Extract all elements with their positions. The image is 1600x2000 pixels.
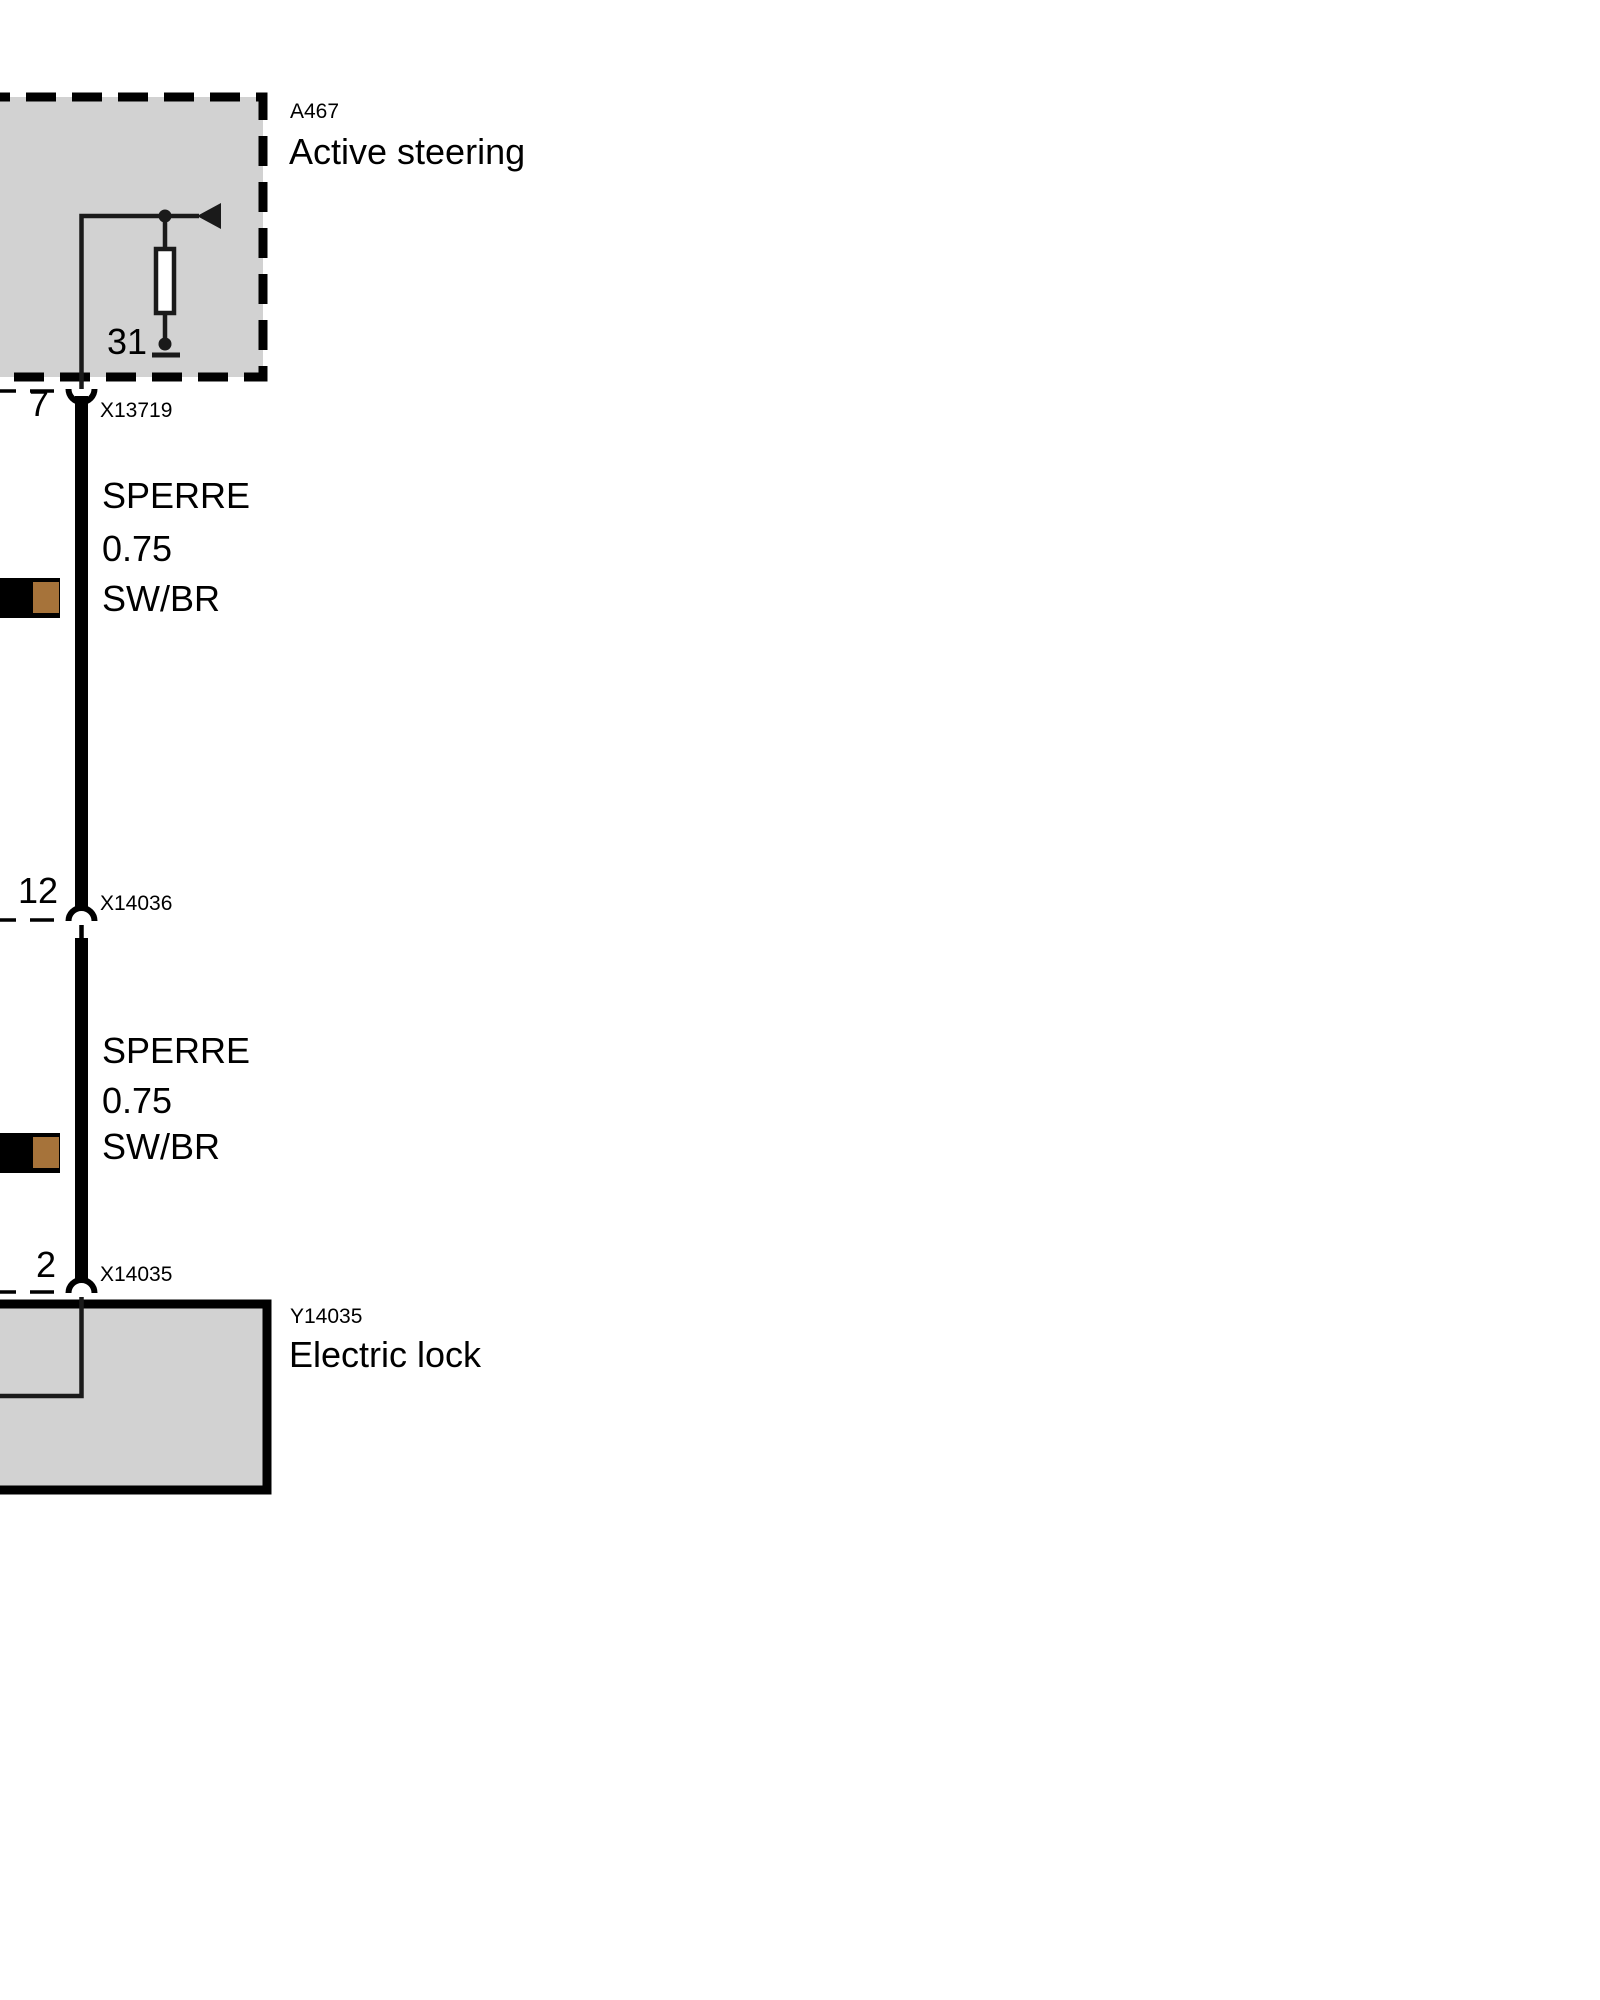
module-top-name: Active steering — [289, 133, 525, 171]
wire2-color-swatch-brown — [33, 1137, 59, 1168]
connector-bottom-code-label: X14035 — [100, 1264, 172, 1286]
ground-dot — [159, 338, 172, 351]
connector-mid-pin-label: 12 — [18, 872, 58, 910]
wire2-name-label: SPERRE — [102, 1032, 250, 1070]
wire1-color-code-label: SW/BR — [102, 580, 220, 618]
ground-pin-label: 31 — [107, 323, 147, 361]
connector-top-code-label: X13719 — [100, 400, 172, 422]
connector-x14036-fork-icon — [69, 908, 95, 921]
connector-bottom-pin-label: 2 — [36, 1246, 56, 1284]
connector-x14035-fork-icon — [69, 1280, 95, 1293]
wire2-gauge-label: 0.75 — [102, 1082, 172, 1120]
wiring-diagram-page: A467 Active steering 31 7 X13719 SPERRE … — [0, 0, 1600, 2000]
wiring-diagram-canvas — [0, 0, 1600, 2000]
module-bottom-code: Y14035 — [290, 1306, 362, 1328]
resistor-icon — [156, 249, 174, 313]
wire1-name-label: SPERRE — [102, 477, 250, 515]
wire1-gauge-label: 0.75 — [102, 530, 172, 568]
module-bottom-name: Electric lock — [289, 1336, 481, 1374]
wire1-color-swatch-brown — [33, 582, 59, 613]
module-top-code: A467 — [290, 101, 339, 123]
connector-mid-code-label: X14036 — [100, 893, 172, 915]
connector-top-pin-label: 7 — [29, 385, 49, 423]
wire2-color-code-label: SW/BR — [102, 1128, 220, 1166]
